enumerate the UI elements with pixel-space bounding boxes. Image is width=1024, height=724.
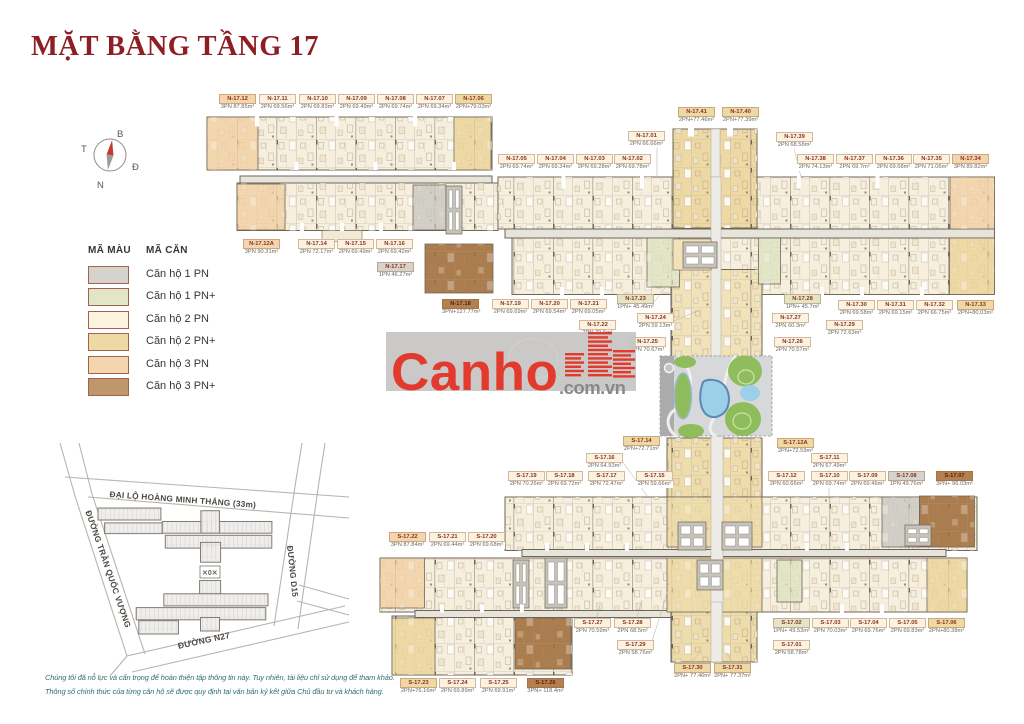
svg-text:✕0✕: ✕0✕ [202,570,218,577]
svg-text:Đ: Đ [132,162,139,173]
svg-text:T: T [81,144,87,155]
svg-text:B: B [117,129,123,140]
svg-text:N: N [97,180,104,191]
